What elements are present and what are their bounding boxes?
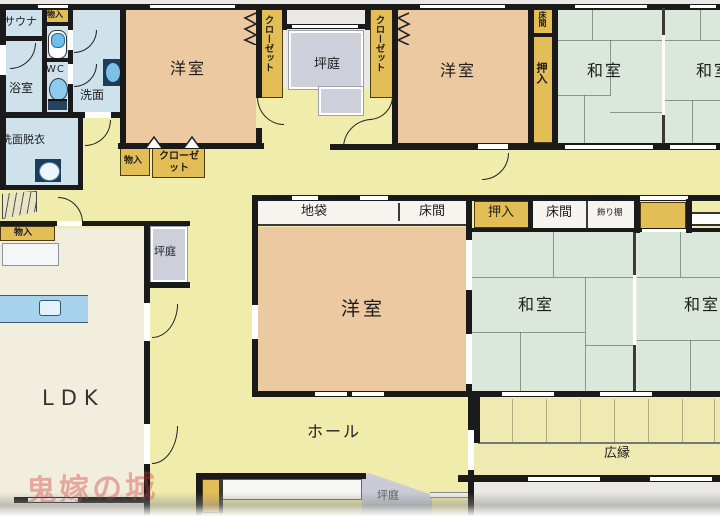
sliding-door — [502, 392, 554, 396]
room-label-garden-top: 坪庭 — [314, 58, 340, 73]
folding-door-icon — [243, 12, 258, 45]
wall — [0, 185, 83, 190]
wall — [552, 4, 558, 149]
room-label-tokonoma-1: 床間 — [538, 11, 546, 27]
wall — [634, 199, 640, 233]
window — [292, 25, 358, 28]
room-label-jibukuro: 地袋 — [301, 205, 327, 220]
veranda-board-line — [512, 399, 513, 443]
tatami-line — [700, 9, 701, 40]
garden-top-courtyard — [318, 86, 364, 116]
room-label-japanese-4: 和室 — [684, 296, 720, 314]
room-label-western-1: 洋室 — [170, 60, 206, 78]
wall — [252, 201, 258, 397]
veranda-board-line — [614, 399, 615, 443]
sliding-door — [662, 35, 665, 115]
oshiire-1-box — [533, 36, 553, 143]
sliding-door — [466, 334, 472, 384]
veranda-board-edge — [478, 442, 720, 444]
room-label-washroom: 洗面 — [80, 89, 104, 103]
toilet-base-icon — [48, 99, 67, 110]
room-label-hall: ホール — [307, 423, 361, 441]
window — [292, 196, 318, 200]
window — [528, 477, 600, 481]
floor-plan: サウナ 浴室 WC 洗面 洗面脱衣 物入 洋室 クローゼット 坪庭 クローゼット… — [0, 0, 720, 516]
wall — [144, 282, 190, 288]
wall — [82, 221, 148, 226]
tatami-line — [520, 332, 521, 391]
room-label-veranda: 広縁 — [604, 447, 630, 462]
tatami-line — [680, 232, 681, 277]
tatami-line — [637, 340, 720, 341]
room-label-tokonoma-2: 床間 — [419, 205, 445, 220]
door-opening — [85, 112, 111, 118]
sink-dressing-bowl-icon — [39, 162, 60, 181]
wall — [0, 221, 57, 226]
sliding-door — [640, 196, 688, 200]
exterior-recess — [289, 10, 363, 24]
room-label-wc: WC — [46, 64, 65, 76]
wall — [528, 199, 533, 230]
veranda-board-line — [546, 399, 547, 443]
wall — [146, 221, 190, 226]
tatami-line — [472, 332, 585, 333]
window — [420, 5, 505, 8]
tatami-line — [610, 112, 662, 113]
door-swing-mark-icon — [145, 136, 163, 148]
room-label-closet-1: クローゼット — [263, 15, 273, 72]
veranda-board-line — [580, 399, 581, 443]
alcove-divider — [398, 203, 400, 221]
window — [315, 392, 347, 396]
kitchen-sink-icon — [39, 300, 61, 316]
shelf-unit — [2, 243, 59, 266]
sliding-door — [565, 145, 653, 149]
door-opening — [144, 424, 150, 464]
bathtub-water-icon — [51, 33, 65, 48]
bridge-passage — [692, 212, 720, 226]
window — [150, 5, 235, 8]
wall — [528, 33, 558, 37]
veranda-board-line — [648, 399, 649, 443]
window — [690, 5, 716, 8]
folding-door-icon — [396, 12, 411, 45]
toilet-icon — [49, 78, 68, 101]
window — [0, 45, 6, 75]
room-label-kazaridana: 飾り棚 — [597, 209, 623, 219]
scan-fade — [0, 492, 720, 516]
veranda-board-line — [682, 399, 683, 443]
wall — [365, 4, 370, 30]
window — [575, 5, 647, 8]
strip-divider — [258, 224, 466, 226]
door-opening — [68, 64, 73, 84]
room-label-closet-3: クローゼット — [157, 151, 201, 174]
sliding-door — [633, 275, 636, 345]
window — [650, 477, 712, 481]
room-label-japanese-1: 和室 — [587, 62, 623, 80]
wall — [120, 4, 126, 149]
room-label-garden-mid: 坪庭 — [154, 246, 176, 259]
tatami-line — [553, 232, 554, 277]
sliding-door — [600, 392, 652, 396]
wall — [0, 4, 6, 190]
room-label-oshiire-1: 押入 — [536, 62, 547, 84]
wall — [42, 58, 73, 62]
room-label-tokonoma-3: 床間 — [546, 206, 572, 221]
tatami-line — [692, 100, 693, 143]
veranda-board-line — [714, 399, 715, 443]
wall — [42, 22, 73, 26]
room-label-western-2: 洋室 — [440, 62, 476, 80]
room-label-oshiire-2: 押入 — [488, 206, 514, 221]
room-label-western-3: 洋室 — [341, 299, 385, 321]
door-opening — [144, 303, 150, 341]
wall — [282, 4, 287, 30]
window — [252, 305, 258, 339]
sink-washroom-bowl-icon — [106, 63, 120, 82]
tatami-line — [584, 95, 585, 143]
sliding-door — [642, 229, 686, 232]
room-label-storage-3: 物入 — [14, 228, 32, 238]
tatami-line — [585, 345, 633, 346]
sliding-door — [670, 145, 716, 149]
door-opening — [478, 144, 508, 149]
room-label-bathroom: 浴室 — [9, 82, 33, 96]
tatami-line — [690, 340, 691, 391]
wall — [474, 397, 480, 443]
wall — [528, 4, 534, 149]
room-label-washroom-dressing: 洗面脱衣 — [1, 134, 45, 147]
door-opening — [68, 30, 73, 50]
room-label-japanese-2: 和室 — [696, 62, 720, 80]
window — [360, 196, 388, 200]
room-label-sauna: サウナ — [4, 16, 37, 29]
tatami-line — [472, 277, 633, 278]
room-label-ldk: LDK — [42, 386, 105, 410]
tatami-line — [592, 9, 593, 40]
wall — [78, 118, 83, 190]
room-label-storage-2: 物入 — [124, 156, 142, 166]
wall — [256, 128, 262, 149]
room-label-storage-1: 物入 — [47, 10, 63, 19]
window — [352, 392, 384, 396]
closet-box-east — [640, 202, 686, 230]
tatami-line — [637, 277, 720, 278]
wall — [586, 201, 588, 228]
tatami-line — [585, 277, 586, 391]
sliding-door — [466, 240, 472, 290]
room-label-closet-2: クローゼット — [374, 15, 384, 72]
door-swing-mark-icon — [183, 136, 201, 148]
tatami-line — [665, 40, 720, 41]
room-label-japanese-3: 和室 — [518, 296, 554, 314]
wall — [0, 36, 45, 41]
